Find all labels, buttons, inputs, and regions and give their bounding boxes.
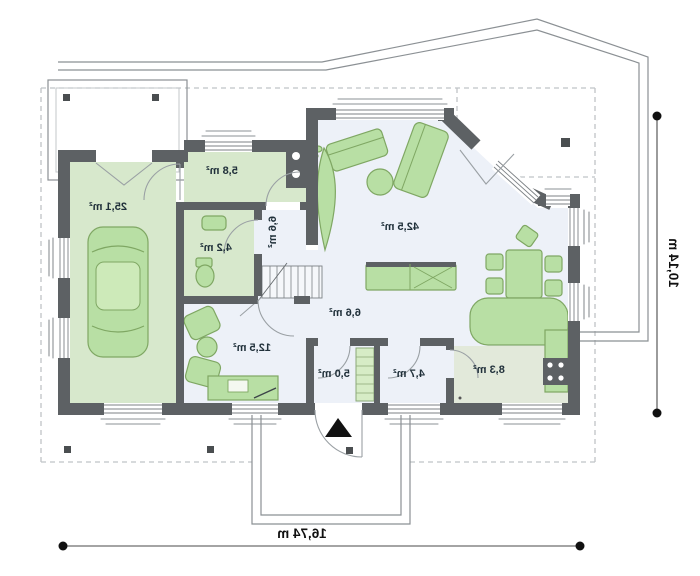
vestibule-area-label: 5,0 m² bbox=[318, 368, 350, 380]
garage-area-label: 25,1 m² bbox=[89, 201, 127, 213]
window-right-2 bbox=[568, 283, 589, 321]
pouf bbox=[367, 169, 393, 195]
bedroom-area-label: 12,5 m² bbox=[233, 342, 271, 354]
bathroom-area-label: 4,7 m² bbox=[393, 368, 425, 380]
kitchen-area-label: 8,3 m² bbox=[473, 364, 505, 376]
window-utility-top bbox=[202, 131, 255, 152]
depth-dimension-label: 10,14 m bbox=[666, 238, 681, 288]
living-area-label: 42,5 m² bbox=[381, 221, 419, 233]
floor-plan-drawing: 25,1 m² 5,8 m² 4,2 m² 6,6 m² 42,5 m² 6,6… bbox=[0, 0, 700, 576]
dimension-width: 16,74 m bbox=[59, 526, 585, 551]
kitchen-dot bbox=[459, 397, 462, 400]
car bbox=[88, 227, 148, 357]
window-garage-bottom bbox=[101, 403, 165, 424]
hall-area-label: 6,6 m² bbox=[329, 307, 361, 319]
window-wing-top bbox=[545, 189, 571, 206]
tv-sideboard bbox=[366, 262, 456, 290]
side-table bbox=[197, 337, 217, 357]
wardrobe bbox=[356, 348, 374, 401]
window-living-top bbox=[333, 99, 447, 120]
window-garage-left-1 bbox=[49, 238, 70, 278]
width-dimension-label: 16,74 m bbox=[277, 526, 327, 541]
toilet-fixture bbox=[196, 258, 214, 287]
washbasin bbox=[202, 216, 226, 230]
desk bbox=[208, 376, 278, 400]
window-right-1 bbox=[568, 208, 589, 246]
floor-plan-canvas: 25,1 m² 5,8 m² 4,2 m² 6,6 m² 42,5 m² 6,6… bbox=[0, 0, 700, 576]
window-kitchen-bottom bbox=[499, 403, 565, 424]
corridor-area-label: 6,6 m² bbox=[267, 216, 279, 248]
dimension-depth: 10,14 m bbox=[653, 112, 682, 418]
window-garage-left-2 bbox=[49, 318, 70, 358]
toilet-area-label: 4,2 m² bbox=[200, 242, 232, 254]
utility-area-label: 5,8 m² bbox=[206, 165, 238, 177]
